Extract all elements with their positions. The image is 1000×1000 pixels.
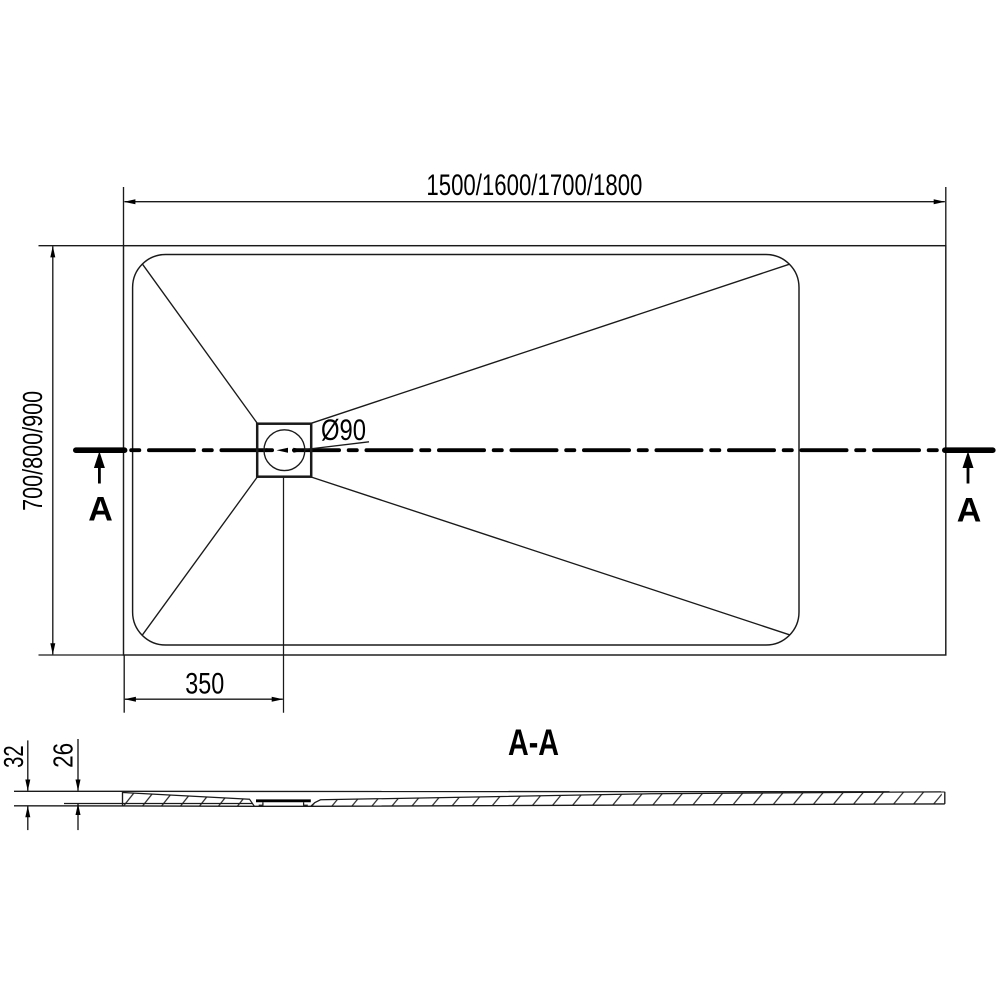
svg-text:700/800/900: 700/800/900	[17, 391, 48, 511]
svg-text:350: 350	[185, 667, 224, 700]
svg-text:26: 26	[48, 743, 79, 768]
svg-text:1500/1600/1700/1800: 1500/1600/1700/1800	[426, 169, 642, 202]
svg-text:32: 32	[0, 745, 29, 768]
svg-text:A-A: A-A	[508, 722, 559, 763]
svg-text:A: A	[88, 491, 113, 529]
svg-text:A: A	[957, 492, 982, 530]
svg-text:Ø90: Ø90	[321, 414, 366, 447]
